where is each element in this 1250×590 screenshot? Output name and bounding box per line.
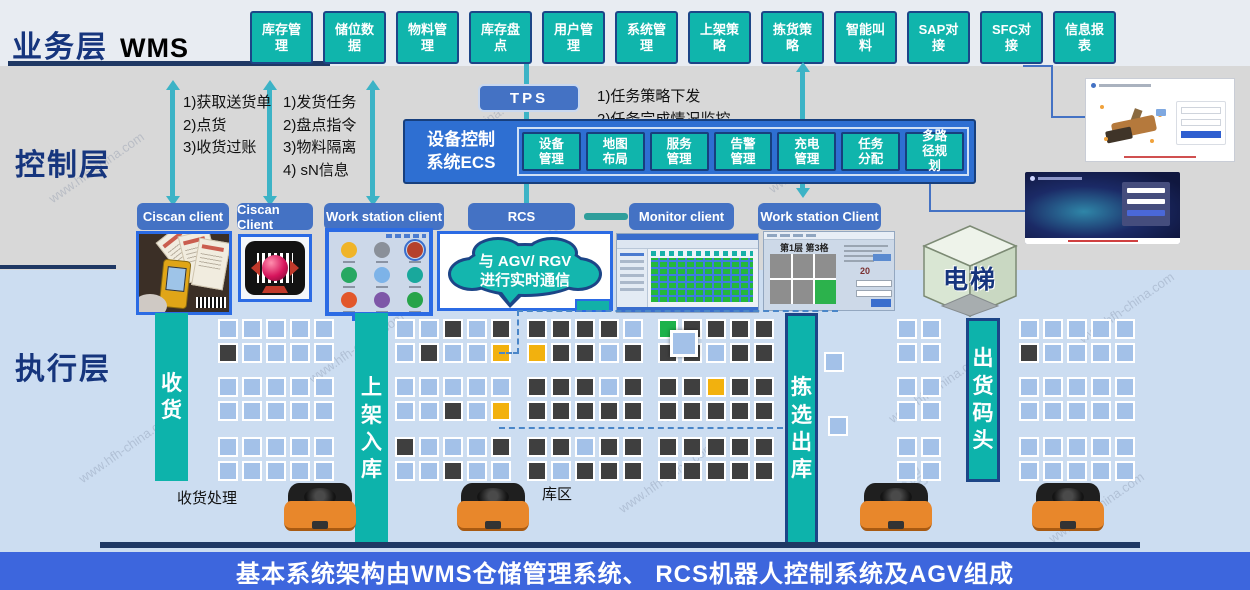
putaway-racks-cell xyxy=(491,377,511,397)
outbound-buffer-cell xyxy=(897,377,917,397)
dock-racks-cell xyxy=(1019,319,1039,339)
storage-racks-1-cell xyxy=(551,437,571,457)
putaway-racks-cell xyxy=(395,319,415,339)
storage-racks-2-cell xyxy=(706,319,726,339)
storage-racks-1-cell xyxy=(599,343,619,363)
receiving-racks-cell xyxy=(266,343,286,363)
outbound-buffer-cell xyxy=(897,461,917,481)
dock-racks-cell xyxy=(1091,343,1111,363)
storage-racks-2-cell xyxy=(730,437,750,457)
putaway-racks-cell xyxy=(467,377,487,397)
storage-racks-1-cell xyxy=(599,437,619,457)
storage-racks-2-cell xyxy=(730,319,750,339)
putaway-racks-cell xyxy=(395,377,415,397)
storage-racks-2-cell xyxy=(706,377,726,397)
putaway-racks-cell xyxy=(443,401,463,421)
putaway-racks-cell xyxy=(395,343,415,363)
storage-racks-2-cell xyxy=(754,377,774,397)
receiving-racks-cell xyxy=(314,401,334,421)
storage-racks-1-cell xyxy=(575,343,595,363)
dock-racks-cell xyxy=(1043,319,1063,339)
receiving-racks-cell xyxy=(218,377,238,397)
putaway-racks-cell xyxy=(419,437,439,457)
storage-racks-1-cell xyxy=(527,343,547,363)
storage-racks-1-cell xyxy=(527,401,547,421)
putaway-racks-cell xyxy=(419,461,439,481)
storage-racks-1-cell xyxy=(599,377,619,397)
footer-bar: 基本系统架构由WMS仓储管理系统、 RCS机器人控制系统及AGV组成 xyxy=(0,552,1250,590)
putaway-racks-cell xyxy=(467,461,487,481)
outbound-buffer-cell xyxy=(921,319,941,339)
storage-racks-2-cell xyxy=(730,377,750,397)
outbound-buffer-cell xyxy=(921,377,941,397)
storage-racks-1-cell xyxy=(551,343,571,363)
receiving-racks-cell xyxy=(242,319,262,339)
dock-racks-cell xyxy=(1067,377,1087,397)
storage-racks-1-cell xyxy=(623,437,643,457)
receiving-racks-cell xyxy=(266,401,286,421)
putaway-racks-cell xyxy=(395,437,415,457)
dock-racks-cell xyxy=(1091,377,1111,397)
putaway-racks-cell xyxy=(419,377,439,397)
storage-racks-2-cell xyxy=(730,343,750,363)
dock-racks-cell xyxy=(1091,461,1111,481)
receiving-racks-cell xyxy=(242,461,262,481)
storage-racks-2-cell xyxy=(706,461,726,481)
storage-racks-1-cell xyxy=(575,319,595,339)
storage-racks-1-cell xyxy=(575,377,595,397)
outbound-buffer-cell xyxy=(921,401,941,421)
dock-racks-cell xyxy=(1115,343,1135,363)
storage-racks-2-cell xyxy=(706,401,726,421)
dock-racks-cell xyxy=(1043,343,1063,363)
dock-racks-cell xyxy=(1043,401,1063,421)
agv-robot-2 xyxy=(455,483,531,531)
putaway-racks-cell xyxy=(467,319,487,339)
storage-racks-2-cell xyxy=(658,377,678,397)
receiving-racks-cell xyxy=(266,437,286,457)
footer-divider xyxy=(100,542,1140,548)
receiving-racks-cell xyxy=(218,343,238,363)
storage-racks-1-cell xyxy=(599,319,619,339)
putaway-racks-cell xyxy=(467,343,487,363)
outbound-buffer-cell xyxy=(897,343,917,363)
dock-racks-cell xyxy=(1019,343,1039,363)
storage-racks-1-cell xyxy=(623,401,643,421)
storage-zone-label: 库区 xyxy=(542,483,572,504)
storage-racks-2-cell xyxy=(754,401,774,421)
storage-racks-1-cell xyxy=(623,461,643,481)
dock-racks-cell xyxy=(1067,437,1087,457)
outbound-buffer-cell xyxy=(921,437,941,457)
dock-racks-cell xyxy=(1019,377,1039,397)
dock-racks-cell xyxy=(1115,401,1135,421)
dock-racks-cell xyxy=(1067,319,1087,339)
dock-racks-cell xyxy=(1115,319,1135,339)
dock-racks-cell xyxy=(1019,437,1039,457)
receiving-racks-cell xyxy=(290,401,310,421)
receiving-racks-cell xyxy=(218,461,238,481)
dock-racks-cell xyxy=(1043,377,1063,397)
storage-racks-2-cell xyxy=(682,461,702,481)
outbound-buffer-cell xyxy=(897,401,917,421)
receiving-racks-cell xyxy=(242,401,262,421)
receiving-racks-cell xyxy=(218,319,238,339)
storage-racks-2-cell xyxy=(754,319,774,339)
receiving-racks-cell xyxy=(290,461,310,481)
storage-racks-1-cell xyxy=(551,401,571,421)
dock-racks-cell xyxy=(1019,401,1039,421)
putaway-racks-cell xyxy=(419,401,439,421)
storage-racks-2-cell xyxy=(730,461,750,481)
dock-racks-cell xyxy=(1067,401,1087,421)
receiving-racks-cell xyxy=(290,437,310,457)
dock-racks-cell xyxy=(1067,343,1087,363)
dock-racks-cell xyxy=(1091,319,1111,339)
agv-robot-3 xyxy=(858,483,934,531)
receiving-racks-cell xyxy=(314,343,334,363)
putaway-racks-cell xyxy=(443,377,463,397)
storage-racks-1-cell xyxy=(551,319,571,339)
storage-racks-2-cell xyxy=(754,437,774,457)
putaway-racks-cell xyxy=(395,401,415,421)
receiving-racks-cell xyxy=(314,461,334,481)
storage-racks-1-cell xyxy=(575,401,595,421)
putaway-racks-cell xyxy=(467,401,487,421)
putaway-racks-cell xyxy=(443,319,463,339)
storage-racks-2-cell xyxy=(754,343,774,363)
wms-architecture-diagram: www.hfh-china.comwww.hfh-china.comwww.hf… xyxy=(0,0,1250,590)
storage-racks-1-cell xyxy=(527,461,547,481)
dock-racks-cell xyxy=(1043,437,1063,457)
receiving-racks-cell xyxy=(242,377,262,397)
dock-racks-cell xyxy=(1115,437,1135,457)
receiving-racks-cell xyxy=(290,377,310,397)
storage-racks-1-cell xyxy=(623,377,643,397)
storage-racks-2-cell xyxy=(706,343,726,363)
storage-racks-2-cell xyxy=(682,401,702,421)
putaway-racks-cell xyxy=(443,461,463,481)
receiving-racks-cell xyxy=(242,437,262,457)
agv-robot-4 xyxy=(1030,483,1106,531)
dock-racks-cell xyxy=(1043,461,1063,481)
storage-racks-2-cell xyxy=(730,401,750,421)
storage-racks-2-cell xyxy=(682,437,702,457)
footer-caption: 基本系统架构由WMS仓储管理系统、 RCS机器人控制系统及AGV组成 xyxy=(236,554,1014,589)
receiving-racks-cell xyxy=(290,319,310,339)
dock-racks-cell xyxy=(1019,461,1039,481)
storage-racks-2-cell xyxy=(682,377,702,397)
putaway-racks-cell xyxy=(419,343,439,363)
putaway-racks-cell xyxy=(419,319,439,339)
dock-racks-cell xyxy=(1091,401,1111,421)
putaway-racks-cell xyxy=(467,437,487,457)
storage-racks-1-cell xyxy=(527,319,547,339)
receiving-racks-cell xyxy=(266,319,286,339)
dock-racks-cell xyxy=(1115,377,1135,397)
putaway-racks-cell xyxy=(395,461,415,481)
putaway-racks-cell xyxy=(443,343,463,363)
putaway-racks-cell xyxy=(491,437,511,457)
receiving-racks-cell xyxy=(242,343,262,363)
receiving-racks-cell xyxy=(266,461,286,481)
putaway-racks-cell xyxy=(491,319,511,339)
buffer-cell xyxy=(828,416,848,436)
receiving-racks-cell xyxy=(218,401,238,421)
agv-carrying-rack-marker xyxy=(670,330,698,357)
zone-dash-bottom xyxy=(499,427,783,429)
storage-racks-1-cell xyxy=(551,377,571,397)
storage-racks-2-cell xyxy=(706,437,726,457)
receiving-racks-cell xyxy=(218,437,238,457)
buffer-cell xyxy=(824,352,844,372)
storage-racks-1-cell xyxy=(575,437,595,457)
storage-racks-2-cell xyxy=(754,461,774,481)
outbound-buffer-cell xyxy=(921,461,941,481)
storage-racks-1-cell xyxy=(551,461,571,481)
receiving-racks-cell xyxy=(266,377,286,397)
storage-racks-1-cell xyxy=(575,461,595,481)
receiving-racks-cell xyxy=(314,437,334,457)
storage-racks-1-cell xyxy=(527,377,547,397)
putaway-racks-cell xyxy=(443,437,463,457)
storage-racks-2-cell xyxy=(658,401,678,421)
storage-racks-1-cell xyxy=(623,343,643,363)
storage-racks-1-cell xyxy=(599,461,619,481)
outbound-buffer-cell xyxy=(921,343,941,363)
storage-racks-2-cell xyxy=(658,461,678,481)
receiving-racks-cell xyxy=(314,377,334,397)
storage-racks-2-cell xyxy=(658,437,678,457)
zone-dash-left xyxy=(517,310,519,354)
agv-robot-1 xyxy=(282,483,358,531)
storage-racks-1-cell xyxy=(599,401,619,421)
putaway-racks-cell xyxy=(491,461,511,481)
outbound-buffer-cell xyxy=(897,319,917,339)
storage-racks-1-cell xyxy=(527,437,547,457)
receiving-racks-cell xyxy=(314,319,334,339)
storage-racks-1-cell xyxy=(623,319,643,339)
dock-racks-cell xyxy=(1067,461,1087,481)
zone-dash-corner xyxy=(499,352,519,354)
receiving-handling-label: 收货处理 xyxy=(177,487,237,508)
dock-racks-cell xyxy=(1115,461,1135,481)
dock-racks-cell xyxy=(1091,437,1111,457)
zone-dash-top xyxy=(517,310,838,312)
receiving-racks-cell xyxy=(290,343,310,363)
putaway-racks-cell xyxy=(491,401,511,421)
outbound-buffer-cell xyxy=(897,437,917,457)
